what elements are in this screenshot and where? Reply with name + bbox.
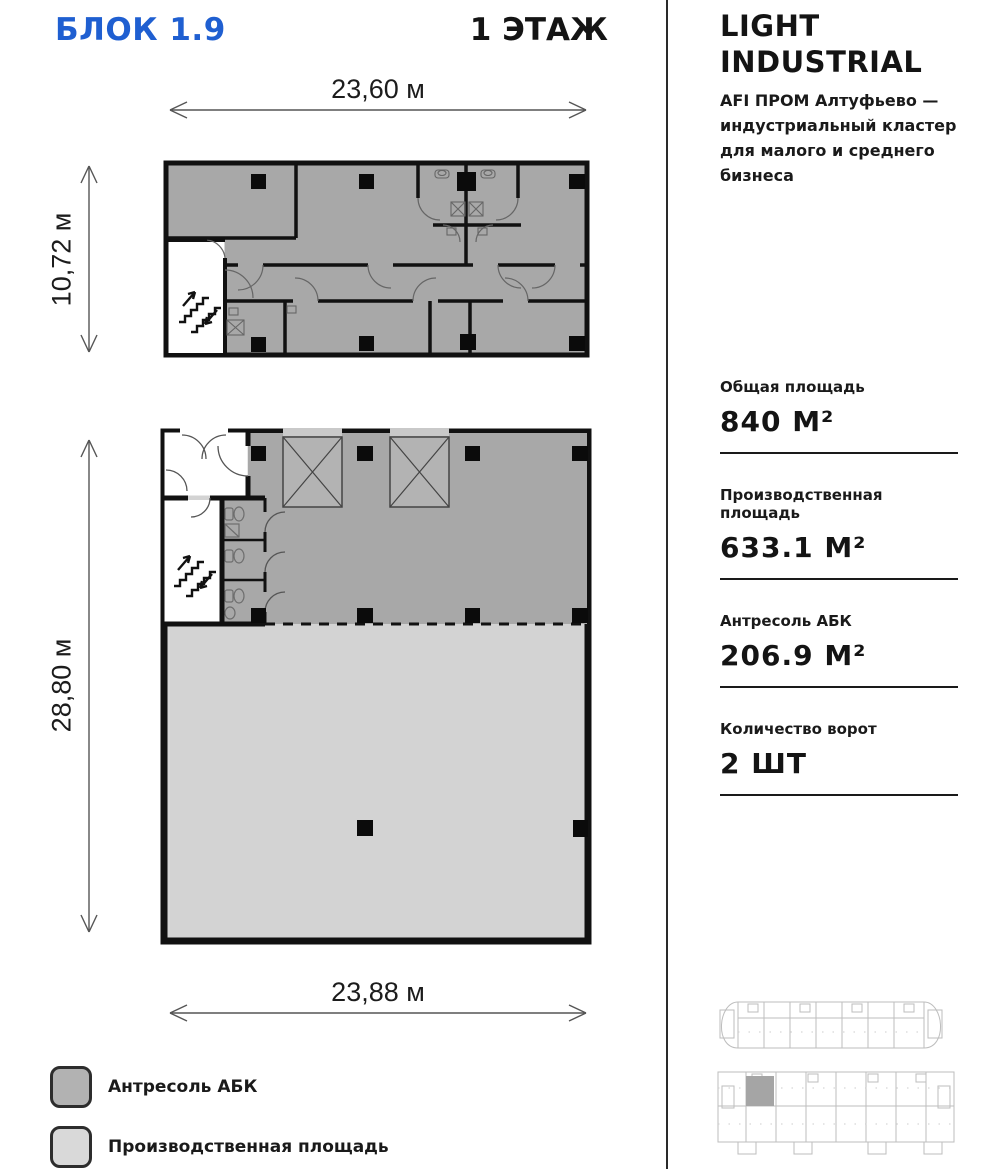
stat-production-area: Производственная площадь 633.1 М² xyxy=(720,486,958,580)
dimension-lower-height: 28,80 м xyxy=(47,586,78,786)
brand-title-line2: INDUSTRIAL xyxy=(720,44,922,80)
building-locator-plan xyxy=(712,988,970,1160)
gate-opening xyxy=(390,428,449,436)
stat-divider xyxy=(720,578,958,580)
stat-label: Количество ворот xyxy=(720,720,958,738)
first-floor-plan xyxy=(160,428,592,945)
brand-title: LIGHT INDUSTRIAL xyxy=(720,8,922,80)
brand-description-line: для малого и среднего xyxy=(720,138,956,163)
legend-swatch-production xyxy=(50,1126,92,1168)
brand-title-line1: LIGHT xyxy=(720,8,922,44)
dimension-arrow-upper-left xyxy=(76,160,102,358)
stat-value: 2 ШТ xyxy=(720,747,958,780)
stat-total-area: Общая площадь 840 М² xyxy=(720,378,958,454)
block-title: БЛОК 1.9 xyxy=(55,12,226,48)
stairwell xyxy=(166,240,225,355)
panel-divider xyxy=(666,0,668,1169)
stat-divider xyxy=(720,686,958,688)
stat-label: Производственная площадь xyxy=(720,486,958,522)
gate-opening xyxy=(283,428,342,436)
brand-description: AFI ПРОМ Алтуфьево — индустриальный клас… xyxy=(720,88,956,188)
legend-label: Антресоль АБК xyxy=(108,1077,257,1097)
gate-crossed-icon xyxy=(283,437,342,507)
dimension-arrow-lower-left xyxy=(76,434,102,938)
locator-highlight-block xyxy=(746,1076,774,1106)
dimension-arrow-bottom xyxy=(163,999,593,1025)
stat-gates-count: Количество ворот 2 ШТ xyxy=(720,720,958,796)
stat-value: 840 М² xyxy=(720,405,958,438)
stat-mezzanine-area: Антресоль АБК 206.9 М² xyxy=(720,612,958,688)
dimension-arrow-top xyxy=(163,96,593,122)
stat-divider xyxy=(720,452,958,454)
stairwell xyxy=(165,500,222,622)
floor-title: 1 ЭТАЖ xyxy=(380,12,608,48)
gate-crossed-icon xyxy=(390,437,449,507)
brand-description-line: индустриальный кластер xyxy=(720,113,956,138)
mezzanine-floor-plan xyxy=(163,158,590,358)
legend-label: Производственная площадь xyxy=(108,1137,389,1157)
locator-top-building xyxy=(720,1002,942,1048)
stat-value: 633.1 М² xyxy=(720,531,958,564)
floor-plan-page: БЛОК 1.9 1 ЭТАЖ LIGHT INDUSTRIAL AFI ПРО… xyxy=(0,0,1000,1169)
dimension-upper-height: 10,72 м xyxy=(47,160,78,360)
stat-value: 206.9 М² xyxy=(720,639,958,672)
stat-label: Антресоль АБК xyxy=(720,612,958,630)
brand-description-line: бизнеса xyxy=(720,163,956,188)
plan-outline xyxy=(166,163,587,355)
stat-divider xyxy=(720,794,958,796)
legend-swatch-mezzanine xyxy=(50,1066,92,1108)
brand-description-line: AFI ПРОМ Алтуфьево — xyxy=(720,88,956,113)
stat-label: Общая площадь xyxy=(720,378,958,396)
entry-opening xyxy=(180,428,228,436)
stats-list: Общая площадь 840 М² Производственная пл… xyxy=(720,378,958,828)
vestibule xyxy=(165,433,248,496)
